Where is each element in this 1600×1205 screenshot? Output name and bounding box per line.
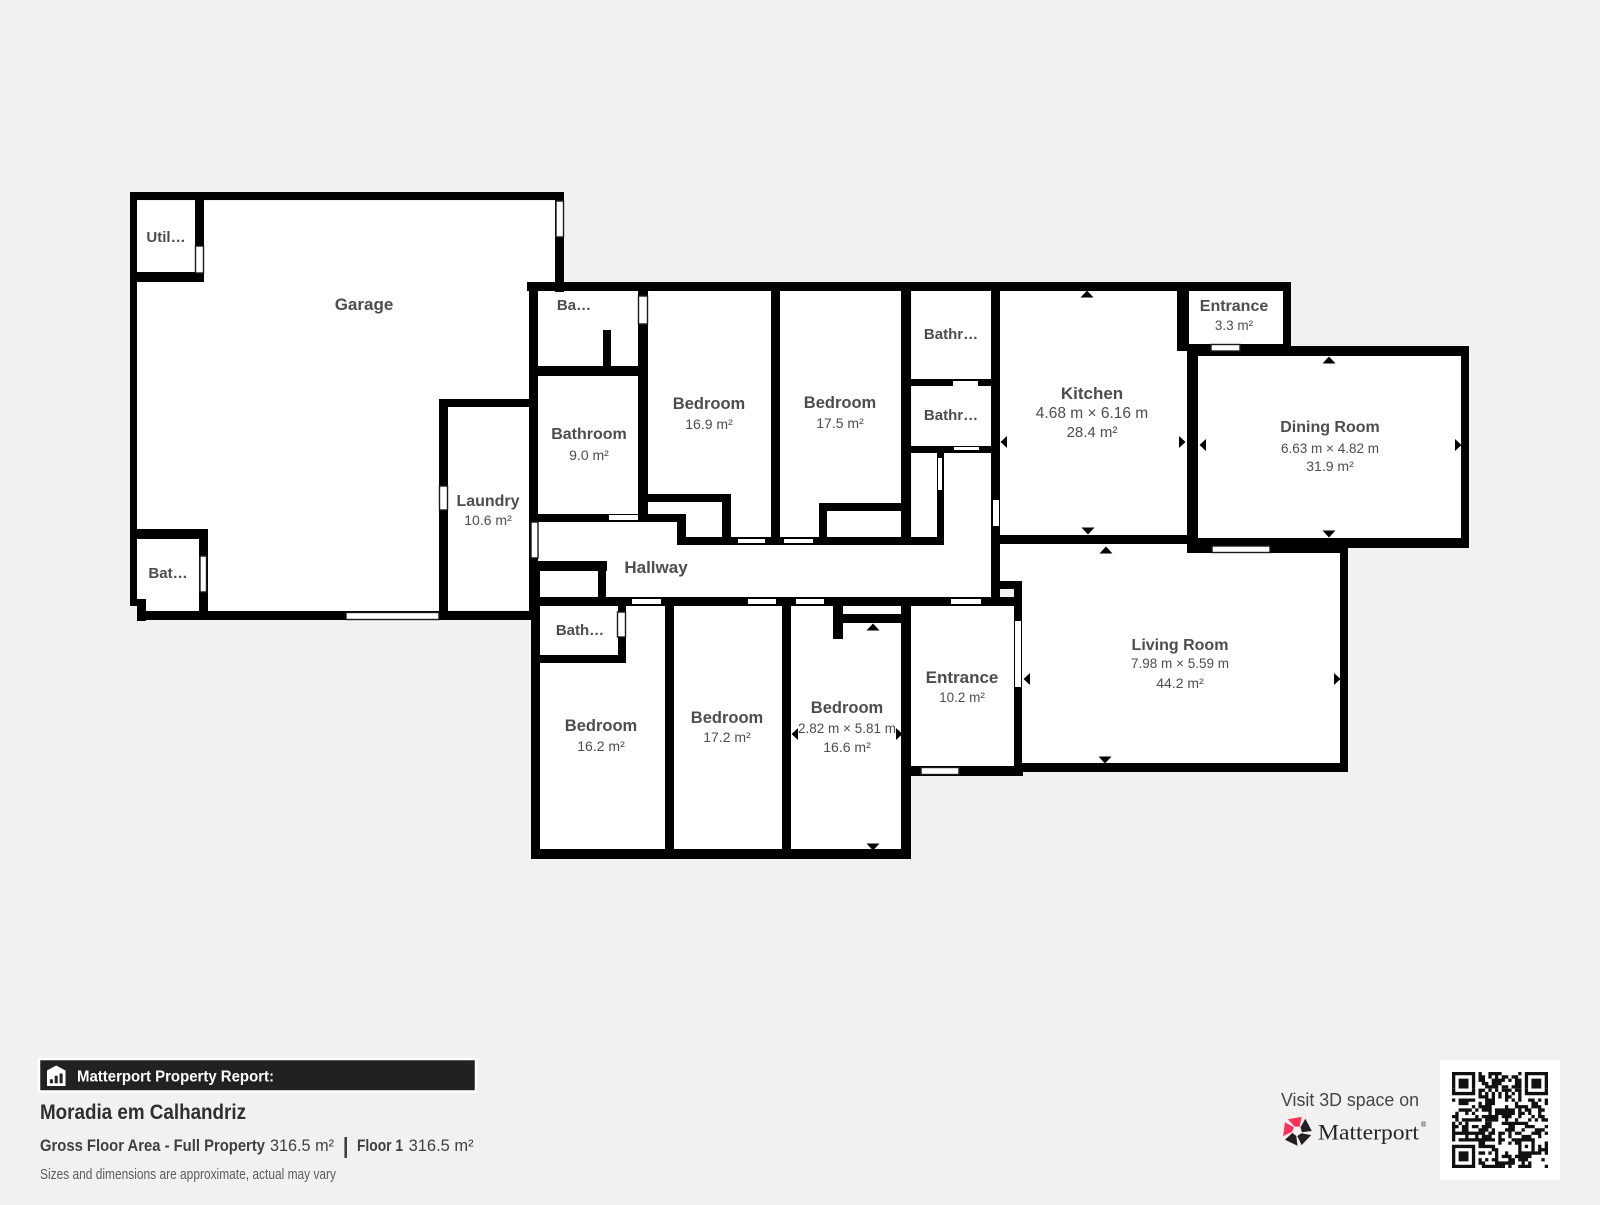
svg-text:4.68 m × 6.16 m: 4.68 m × 6.16 m <box>1036 405 1148 422</box>
svg-text:Hallway: Hallway <box>624 558 688 577</box>
svg-text:Entrance: Entrance <box>926 668 999 687</box>
svg-text:Matterport Property Report:: Matterport Property Report: <box>77 1069 274 1086</box>
svg-text:Visit 3D space on: Visit 3D space on <box>1281 1090 1419 1110</box>
svg-text:17.2 m²: 17.2 m² <box>703 729 751 745</box>
svg-text:Living Room: Living Room <box>1132 637 1229 654</box>
svg-text:316.5 m²: 316.5 m² <box>409 1136 474 1155</box>
svg-text:Sizes and dimensions are appro: Sizes and dimensions are approximate, ac… <box>40 1166 336 1183</box>
svg-text:Bedroom: Bedroom <box>565 717 637 735</box>
svg-text:44.2 m²: 44.2 m² <box>1156 675 1204 691</box>
svg-text:Garage: Garage <box>335 295 394 314</box>
svg-text:Bedroom: Bedroom <box>811 699 883 717</box>
svg-text:Moradia em Calhandriz: Moradia em Calhandriz <box>40 1101 246 1124</box>
svg-text:Util…: Util… <box>146 229 185 246</box>
svg-text:10.2 m²: 10.2 m² <box>939 690 985 705</box>
svg-text:Kitchen: Kitchen <box>1061 384 1123 403</box>
svg-text:Bat…: Bat… <box>148 565 187 582</box>
svg-text:7.98 m × 5.59 m: 7.98 m × 5.59 m <box>1131 656 1229 671</box>
svg-text:16.6 m²: 16.6 m² <box>823 739 871 755</box>
svg-text:6.63 m × 4.82 m: 6.63 m × 4.82 m <box>1281 441 1379 456</box>
svg-text:Bedroom: Bedroom <box>691 709 763 727</box>
svg-text:2.82 m × 5.81 m: 2.82 m × 5.81 m <box>798 721 896 736</box>
svg-text:31.9 m²: 31.9 m² <box>1306 458 1354 474</box>
svg-text:16.9 m²: 16.9 m² <box>685 416 733 432</box>
svg-text:316.5 m²: 316.5 m² <box>270 1136 334 1155</box>
svg-text:Dining Room: Dining Room <box>1280 419 1380 436</box>
svg-text:17.5 m²: 17.5 m² <box>816 415 864 431</box>
svg-text:Bathr…: Bathr… <box>924 407 978 424</box>
svg-text:Bathroom: Bathroom <box>551 426 627 443</box>
svg-text:Bath…: Bath… <box>556 622 604 639</box>
svg-text:Laundry: Laundry <box>456 493 519 510</box>
svg-text:28.4 m²: 28.4 m² <box>1067 424 1118 441</box>
svg-text:Matterport: Matterport <box>1318 1120 1419 1145</box>
svg-text:Floor 1: Floor 1 <box>357 1136 403 1155</box>
svg-text:3.3 m²: 3.3 m² <box>1215 318 1254 333</box>
svg-text:Bedroom: Bedroom <box>804 394 876 412</box>
svg-text:Ba…: Ba… <box>557 297 591 314</box>
svg-text:®: ® <box>1421 1120 1427 1129</box>
svg-text:9.0 m²: 9.0 m² <box>569 447 609 463</box>
svg-text:10.6 m²: 10.6 m² <box>464 512 512 528</box>
svg-text:Gross Floor Area - Full Proper: Gross Floor Area - Full Property <box>40 1136 265 1155</box>
svg-text:16.2 m²: 16.2 m² <box>577 738 625 754</box>
svg-text:Bedroom: Bedroom <box>673 395 745 413</box>
svg-text:Bathr…: Bathr… <box>924 326 978 343</box>
svg-text:Entrance: Entrance <box>1200 298 1269 315</box>
